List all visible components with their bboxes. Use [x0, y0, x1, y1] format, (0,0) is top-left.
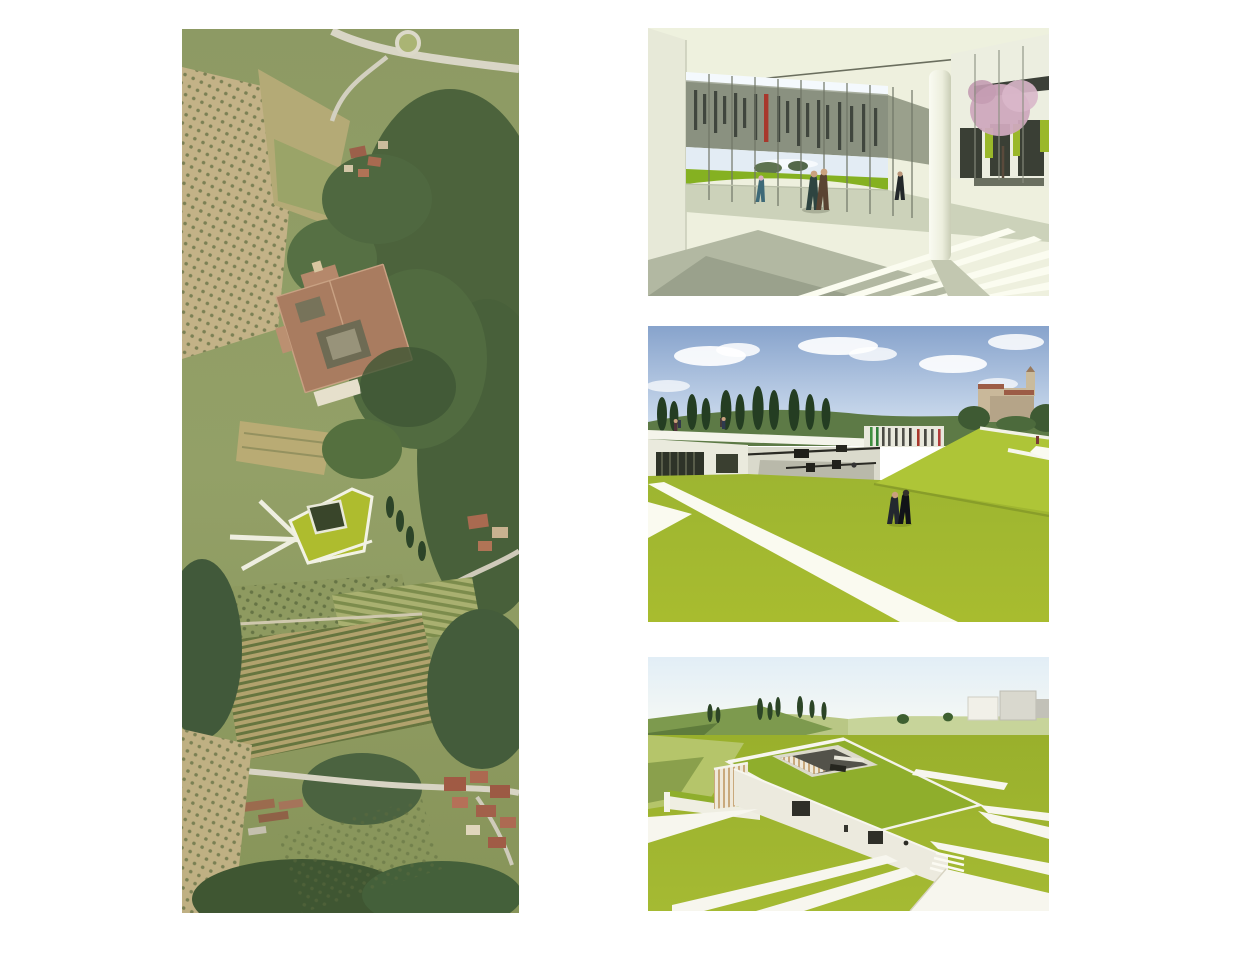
courtyard-render-image	[648, 28, 1049, 296]
slotted-band-facade	[686, 81, 888, 158]
aerial-site-photo	[182, 29, 519, 913]
aerial-site-photo-image	[182, 29, 519, 913]
green-roof-render	[648, 326, 1049, 622]
red-window-slit	[764, 94, 768, 142]
aerial-render-image	[648, 657, 1049, 911]
green-roof-render-image	[648, 326, 1049, 622]
round-column	[929, 70, 951, 262]
courtyard-render	[648, 28, 1049, 296]
presentation-board	[0, 0, 1240, 960]
aerial-base	[182, 29, 519, 913]
right-glass-wall	[951, 34, 1049, 188]
aerial-render	[648, 657, 1049, 911]
